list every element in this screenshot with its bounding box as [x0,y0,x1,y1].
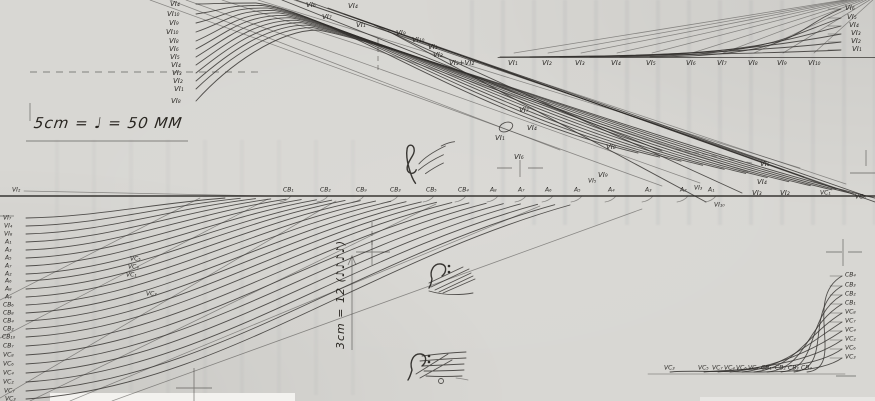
instrument-label: VC₁ [820,190,831,197]
glissando-bundle-middle [282,0,875,202]
instrument-label: CB₁ [761,365,772,372]
instrument-label: VI₉ [777,59,787,67]
instrument-label: A₄ [4,294,12,301]
instrument-label: A₇ [4,263,12,270]
crop-marks [0,38,875,401]
glissando-line [423,196,434,202]
instrument-label: VI₈ [748,59,758,67]
instrument-label: A₈ [489,187,497,194]
glissando-line [26,203,469,346]
glissando-net-bottom-left [0,191,642,401]
instrument-label: VC₃ [146,291,157,298]
glissando-line [548,0,847,53]
instrument-label: VC₆ [845,345,856,352]
instrument-label: VI₃ [694,185,703,192]
instrument-label: VI₉ [598,171,608,179]
glissando-line [26,203,486,355]
instrument-label: CB₃ [390,187,401,194]
treble-clef-icon [402,135,462,185]
instrument-label: VI₃ [752,189,762,197]
instrument-label: VI₆ [845,4,855,12]
instrument-label: VI₄ [757,178,767,186]
instrument-label: VI₄ [170,0,180,8]
instrument-label: VI₆ [514,153,524,161]
instrument-label: A₆ [4,278,12,285]
instrument-label: VC₈ [748,365,759,372]
glissando-line [196,8,681,161]
glissando-line [0,201,336,398]
glissando-line [150,0,662,186]
glissando-line [26,198,240,226]
instrument-label: CB₄ [801,365,812,372]
instrument-label: VI₄ [348,2,358,10]
bass-clef-bottom-icon [408,352,468,384]
glissando-line [455,196,466,202]
tempo-annotation: 5cm = ♩ = 50 MM [33,114,184,132]
instrument-label: CB₄ [3,318,14,325]
instrument-label: A₂ [4,271,12,278]
instrument-label: VI₁ [495,134,505,142]
instrument-label: VI₃ [851,29,861,37]
glissando-line [781,295,842,372]
instrument-label: A₁ [707,187,715,194]
glissando-line [70,206,540,401]
instrument-label: VI₂ [542,59,552,67]
instrument-label: VI₇ [519,106,529,114]
instrument-label: VC₃ [5,396,16,401]
glissando-line [282,0,662,151]
instrument-label: VI₂ [173,77,183,85]
instrument-label: CB₁₀ [2,334,16,341]
instrument-label: VI₄ [849,21,859,29]
instrument-label: CB₂ [320,187,331,194]
instrument-label: VI₂ [433,51,443,59]
instrument-label: VI₁ [174,85,184,93]
instrument-label: A₄ [607,187,615,194]
glissando-line [642,196,653,202]
instrument-label: CB₁ [283,187,294,194]
instrument-label: A₅ [4,255,12,262]
instrument-label: VI₈ [169,37,179,45]
instrument-label: VI₁ [356,21,366,29]
instrument-label: VI₆ [686,59,696,67]
instrument-label: CB₅ [426,187,437,194]
instrument-label: VI₄ [611,59,621,67]
instrument-label: VI₂ [851,37,861,45]
glissando-line [196,18,767,178]
glissando-line [196,10,703,165]
glissando-net-bottom-right [670,276,842,372]
instrument-label: VI₂ [780,189,790,197]
instrument-label: VI₇ [322,13,332,21]
instrument-label: VC₆ [736,365,747,372]
glissando-line [26,200,316,266]
glissando-line [794,286,842,372]
center-timeline [0,57,875,374]
glissando-line [222,0,748,172]
photocopied-score-sketch: VI₄VI₁₀VI₉VI₁₀VI₈VI₆VI₅VI₄VI₃VI₂VI₁VI₈VI… [0,0,875,401]
glissando-line [24,191,270,196]
instrument-label: VI₆ [306,1,316,9]
glissando-line [112,209,642,401]
instrument-label: CB₇ [3,343,14,350]
instrument-label: VI₁₀ [167,10,180,18]
instrument-label: CB₃ [788,365,799,372]
instrument-label: A₇ [517,187,525,194]
instrument-label: CB₉ [356,187,367,194]
glissando-line [296,0,766,162]
glissando-line [754,313,842,372]
instrument-label: A₆ [544,187,552,194]
instrument-label: VI₁ [428,43,438,51]
instrument-label: VI₄ [527,124,537,132]
instrument-label: VC₆ [3,361,14,368]
instrument-label: CB₂ [845,291,856,298]
instrument-label: VI₅ [170,53,180,61]
instrument-label: A₈ [4,286,12,293]
bass-clef-mid-icon [429,264,475,295]
glissando-line [186,0,700,183]
glissando-line [26,204,538,382]
instrument-label: VC₄ [724,365,735,372]
glissando-line [258,0,800,168]
instrument-label: VI₁ [508,59,518,67]
instrument-label: VI₁ [852,45,862,53]
glissando-line [542,196,553,202]
instrument-label: VC₄ [3,370,14,377]
instrument-label: VI₇ [3,215,12,222]
instrument-label: CB₄ [458,187,469,194]
instrument-label: VI₇ [717,59,727,67]
instrument-label: VI₅ [847,13,857,21]
instrument-label: VI₃+VI₂ [449,59,474,67]
instrument-label: A₁ [4,239,12,246]
instrument-label: VI₉ [396,29,406,37]
instrument-label: VI₁₀ [412,36,425,44]
instrument-label: VI₄ [171,61,181,69]
instrument-label: VI₁₀ [714,202,725,209]
convergence-ticks [280,196,716,202]
instrument-label: VI₆ [169,45,179,53]
instrument-label: A₅ [573,187,581,194]
instrument-label: VI₃ [172,69,182,77]
glissando-line [196,13,724,170]
instrument-label: VI₁₀ [166,28,179,36]
instrument-label: A₃ [4,247,12,254]
glissando-line [571,196,582,202]
instrument-label: CB₂ [775,365,786,372]
instrument-label: VI₉ [169,19,179,27]
margin-strip [700,397,875,401]
instrument-label: VC₂ [3,379,14,386]
instrument-label: VC₃ [664,365,675,372]
instrument-label: VC₄ [845,327,856,334]
instrument-label: VC₂ [845,336,856,343]
instrument-label: CB₆ [3,302,14,309]
instrument-label: VC₄ [128,264,139,271]
instrument-label: VI₅ [588,178,597,185]
instrument-label: VI₄ [4,223,13,230]
glissando-line [514,0,844,53]
glissando-line [26,199,271,242]
instrument-label: VI₈ [4,231,13,238]
instrument-label: VC₇ [4,388,15,395]
instrument-label: VI₅ [646,59,656,67]
glissando-line [814,0,873,53]
glissando-line [0,198,200,300]
instrument-label: CB₂ [3,326,14,333]
glissando-line [677,196,688,202]
instrument-label: CB₄ [845,272,856,279]
glissando-line [26,203,452,337]
instrument-label: A₃ [644,187,652,194]
instrument-label: VC₈ [845,309,856,316]
instrument-label: VC₆ [855,194,866,201]
instrument-label: VC₅ [130,256,141,263]
instrument-label: VC₁ [126,272,137,279]
instrument-label: VC₇ [845,318,856,325]
glissando-net-top-right [500,0,873,57]
glissando-line [387,196,398,202]
instrument-label: VI₂ [12,187,21,194]
instrument-label: VC₃ [845,354,856,361]
glissando-line [30,204,436,401]
glissando-line [487,196,498,202]
instrument-label: VI₈ [171,97,181,105]
instrument-label: VI₁₀ [808,59,821,67]
instrument-label: A₂ [679,187,687,194]
distance-annotation: 3cm = 12 (♪♪♪♪) [334,240,347,349]
instrument-label: CB₃ [845,282,856,289]
instrument-label: CB₈ [3,310,14,317]
instrument-label: VI₃ [575,59,585,67]
glissando-line [515,196,526,202]
instrument-label: VC₅ [698,365,709,372]
instrument-label: VI₅ [760,160,770,168]
glissando-sketch-canvas: VI₄VI₁₀VI₉VI₁₀VI₈VI₆VI₅VI₄VI₃VI₂VI₁VI₈VI… [0,0,875,401]
instrument-label: VC₈ [3,352,14,359]
glissando-line [605,196,616,202]
instrument-label: CB₁ [845,300,856,307]
instrument-label: VC₇ [712,365,723,372]
instrument-label: VI₈ [606,143,616,151]
glissando-line [26,204,503,364]
